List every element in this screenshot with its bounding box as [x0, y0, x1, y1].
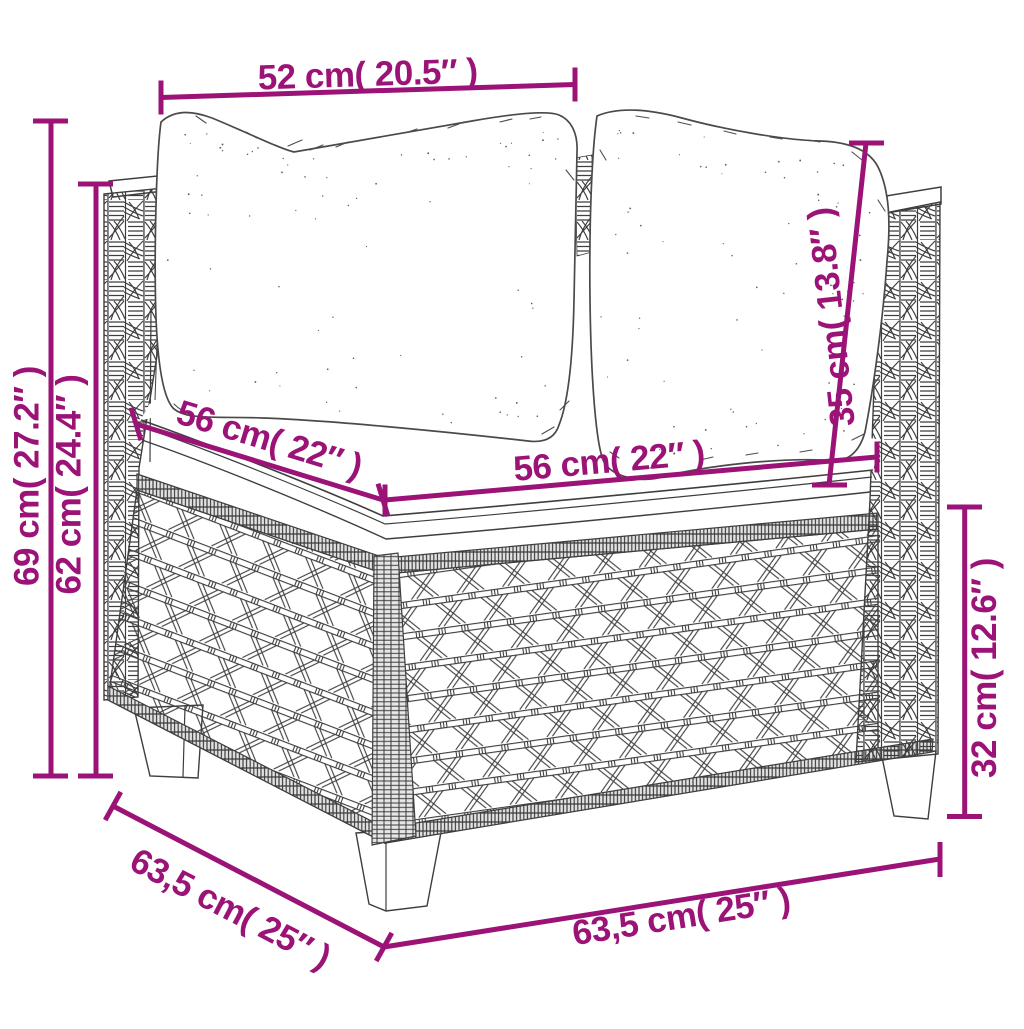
svg-text:62 cm( 24.4″ ): 62 cm( 24.4″ ) — [50, 375, 89, 595]
svg-text:32 cm( 12.6″ ): 32 cm( 12.6″ ) — [965, 558, 1004, 778]
svg-text:69 cm( 27.2″ ): 69 cm( 27.2″ ) — [8, 366, 47, 586]
svg-text:52 cm( 20.5″ ): 52 cm( 20.5″ ) — [257, 52, 478, 98]
